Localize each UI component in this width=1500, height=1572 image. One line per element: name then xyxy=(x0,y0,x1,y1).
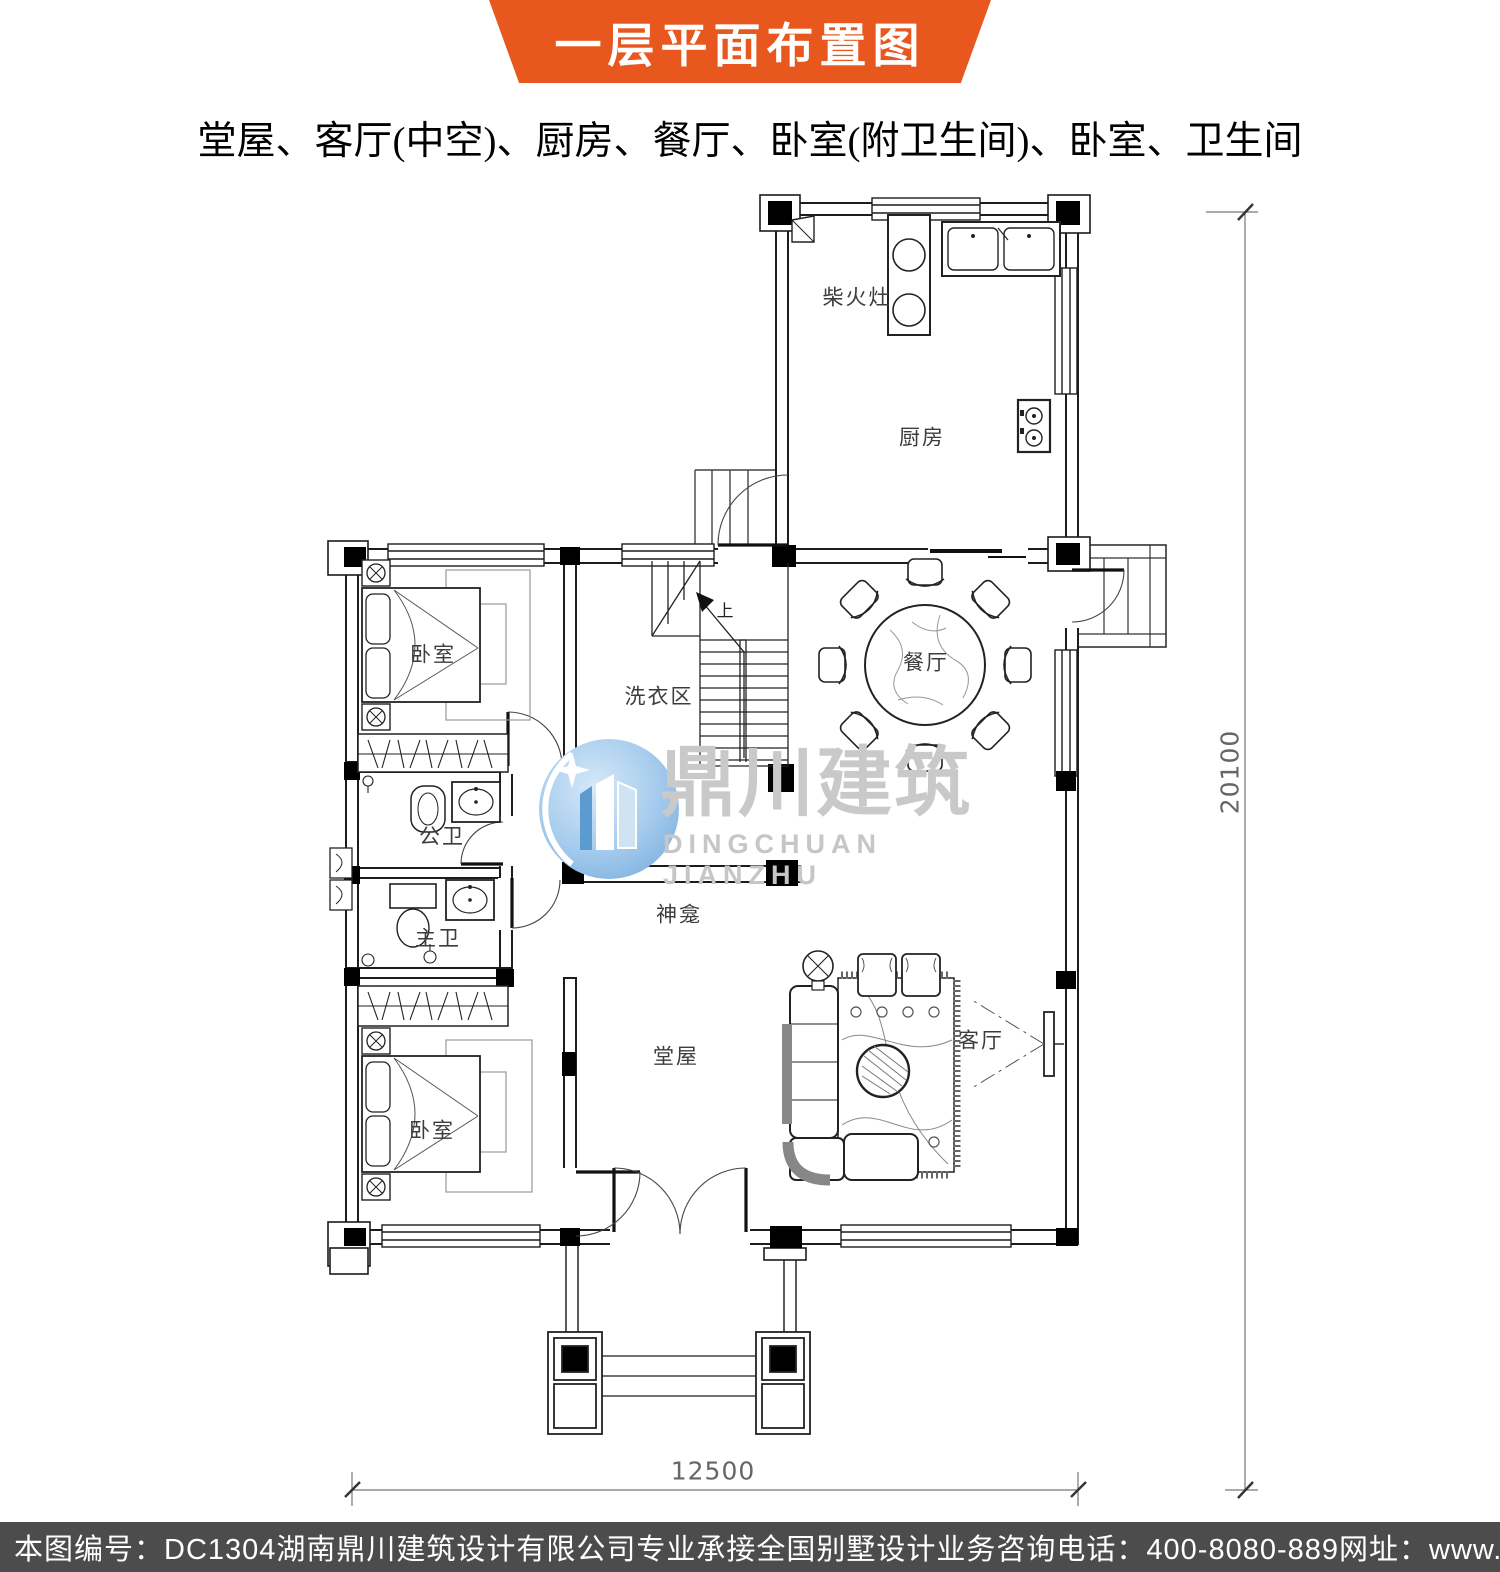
dimension-width-label: 12500 xyxy=(671,1459,756,1484)
side-stairs xyxy=(1078,545,1166,647)
closet xyxy=(358,986,508,1026)
room-label-laundry: 洗衣区 xyxy=(625,687,694,708)
page-title: 一层平面布置图 xyxy=(555,7,926,76)
room-label-shrine: 神龛 xyxy=(656,905,702,926)
watermark-en-text: DINGCHUAN JIANZHU xyxy=(663,829,1004,891)
bedroom-bottom-furniture xyxy=(362,1028,532,1200)
watermark: 鼎川建筑 DINGCHUAN JIANZHU xyxy=(534,732,1004,877)
room-label-bedroom-bottom: 卧室 xyxy=(409,1121,455,1142)
room-label-wood-stove: 柴火灶 xyxy=(823,288,892,309)
footer-company: 湖南鼎川建筑设计有限公司专业承接全国别墅设计业务 xyxy=(276,1526,996,1568)
wall-openings xyxy=(498,547,1080,1246)
watermark-cn-text: 鼎川建筑 xyxy=(660,746,972,822)
dimension-height-label: 20100 xyxy=(1218,730,1243,815)
kitchen-fixtures xyxy=(792,215,1060,452)
living-room-furniture xyxy=(782,951,1064,1180)
stairs-up-label: 上 xyxy=(717,604,736,621)
room-label-kitchen: 厨房 xyxy=(899,428,945,449)
room-label-dining: 餐厅 xyxy=(903,653,949,674)
room-label-public-bath: 公卫 xyxy=(419,827,465,848)
footer-phone: 咨询电话：400-8080-889 xyxy=(996,1526,1339,1568)
porch-pedestals xyxy=(548,1332,810,1434)
stairs-arrow xyxy=(696,592,714,612)
room-label-master-bath: 主卫 xyxy=(415,929,461,950)
rear-landing xyxy=(695,470,788,547)
room-list-subtitle: 堂屋、客厅(中空)、厨房、餐厅、卧室(附卫生间)、卧室、卫生间 xyxy=(0,110,1500,166)
footer-bar: 本图编号：DC1304 湖南鼎川建筑设计有限公司专业承接全国别墅设计业务 咨询电… xyxy=(0,1522,1500,1572)
title-banner: 一层平面布置图 xyxy=(489,0,991,83)
room-label-living: 客厅 xyxy=(958,1031,1004,1052)
room-label-bedroom-top: 卧室 xyxy=(410,645,456,666)
room-label-main-hall: 堂屋 xyxy=(653,1047,699,1068)
footer-website: 网址：www.bstzcs.com xyxy=(1339,1526,1500,1568)
floor-plan-page: 一层平面布置图 堂屋、客厅(中空)、厨房、餐厅、卧室(附卫生间)、卧室、卫生间 xyxy=(0,0,1500,1572)
footer-sheet-number: 本图编号：DC1304 xyxy=(14,1526,276,1568)
